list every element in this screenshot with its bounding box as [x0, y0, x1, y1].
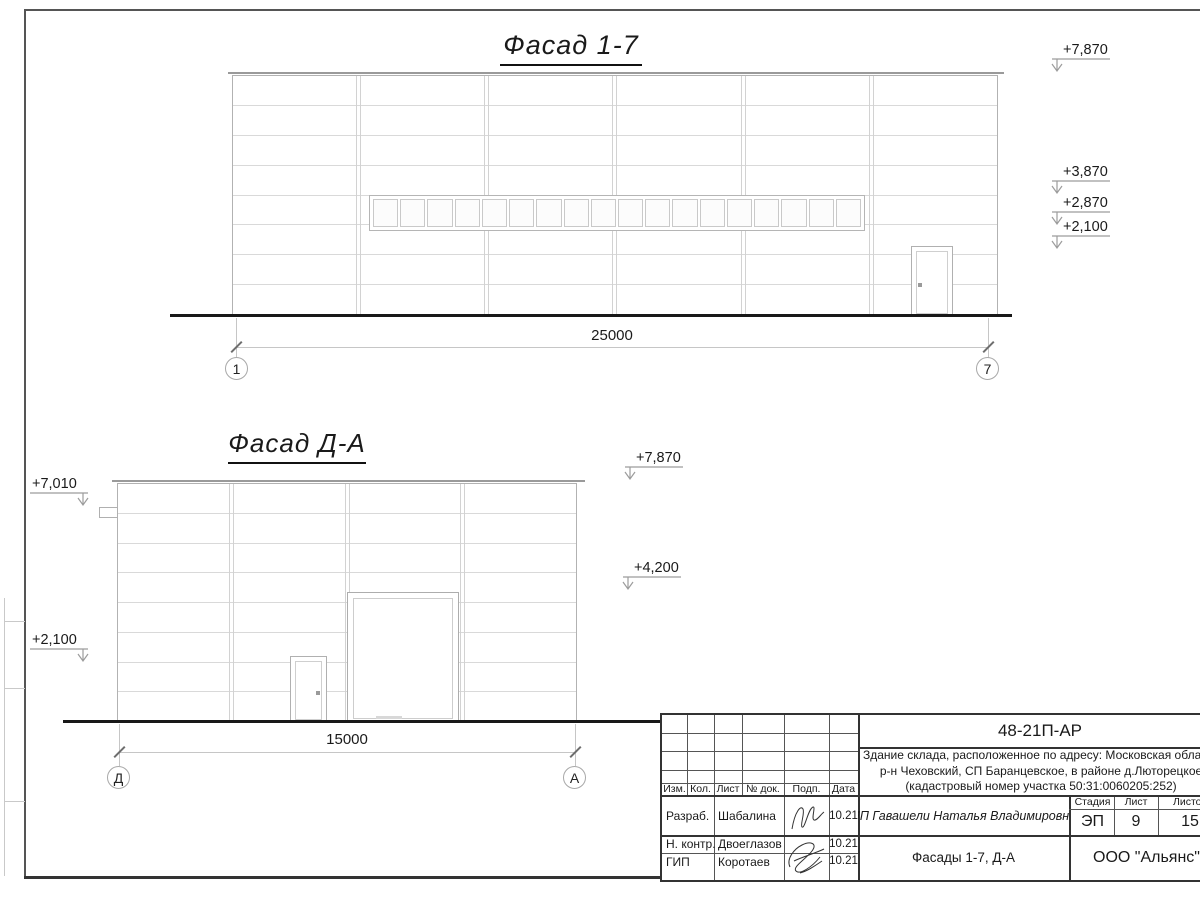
elevation-symbol-icon — [1050, 235, 1112, 251]
col-header-kol: Кол. — [687, 783, 714, 795]
elevation-mark: +7,010 — [28, 476, 92, 508]
project-description-line: р-н Чеховский, СП Баранцевское, в районе… — [860, 764, 1200, 780]
door-handle — [918, 283, 922, 287]
company-name: ООО "Альянс" — [1071, 835, 1200, 880]
gate-threshold — [376, 716, 402, 719]
elevation-value: +7,010 — [28, 476, 92, 492]
dimension-value: 25000 — [562, 327, 662, 344]
margin-divider — [4, 621, 25, 622]
sheet-number: 9 — [1114, 809, 1158, 835]
elevation-mark: +3,870 — [1050, 164, 1114, 196]
title-block-line — [662, 733, 858, 734]
signer-date: 10.21 — [829, 797, 858, 835]
entry-door — [911, 246, 953, 316]
margin-divider — [4, 688, 25, 689]
axis-marker-7: 7 — [976, 357, 999, 380]
facade-d-a-title: Фасад Д-А — [228, 428, 366, 464]
window-pane — [618, 199, 643, 227]
elevation-value: +7,870 — [1050, 42, 1114, 58]
elevation-value: +3,870 — [1050, 164, 1114, 180]
elevation-mark: +7,870 — [1050, 42, 1114, 74]
elevation-symbol-icon — [621, 576, 683, 592]
col-header-izm: Изм. — [662, 783, 687, 795]
window-pane — [373, 199, 398, 227]
project-description-line: Здание склада, расположенное по адресу: … — [860, 748, 1200, 764]
window-pane — [781, 199, 806, 227]
facade-d-a-elevation — [117, 483, 577, 722]
sheet-label: Лист — [1114, 795, 1158, 809]
window-pane — [591, 199, 616, 227]
signer-role: Разраб. — [662, 797, 718, 835]
sheets-label: Листов — [1158, 795, 1200, 809]
elevation-symbol-icon — [1050, 58, 1112, 74]
window-pane — [427, 199, 452, 227]
window-pane — [455, 199, 480, 227]
parapet-coping — [112, 480, 585, 482]
sheets-total: 15 — [1158, 809, 1200, 835]
signer-date: 10.21 — [829, 853, 858, 878]
elevation-value: +4,200 — [621, 560, 685, 576]
drawing-title: Фасады 1-7, Д-А — [858, 835, 1069, 880]
axis-marker-1: 1 — [225, 357, 248, 380]
elevation-value: +7,870 — [623, 450, 687, 466]
signer-role: ГИП — [662, 853, 718, 878]
roller-gate — [347, 592, 459, 722]
axis-marker-d: Д — [107, 766, 130, 789]
signer-name: Двоеглазов — [714, 835, 788, 853]
margin-column-line — [4, 598, 5, 876]
signature-icon — [786, 799, 828, 835]
extension-line — [575, 724, 576, 766]
signature-icon — [782, 833, 830, 879]
dimension-line — [119, 752, 575, 753]
window-pane — [509, 199, 534, 227]
frame-left — [24, 9, 26, 878]
side-entry-door — [290, 656, 327, 722]
window-pane — [645, 199, 670, 227]
elevation-mark: +7,870 — [623, 450, 687, 482]
elevation-mark: +4,200 — [621, 560, 685, 592]
window-pane — [400, 199, 425, 227]
wall-outlet — [99, 507, 118, 518]
elevation-value: +2,100 — [28, 632, 92, 648]
facade-1-7-title: Фасад 1-7 — [500, 30, 642, 66]
client-name: ИП Гавашели Наталья Владимировна — [858, 797, 1069, 835]
door-handle — [316, 691, 320, 695]
signer-date: 10.21 — [829, 835, 858, 853]
window-pane — [482, 199, 507, 227]
window-pane — [836, 199, 861, 227]
col-header-list: Лист — [714, 783, 742, 795]
extension-line — [236, 318, 237, 358]
extension-line — [119, 724, 120, 766]
column-joint — [229, 484, 234, 721]
elevation-symbol-icon — [28, 648, 90, 664]
gate-leaf — [353, 598, 453, 719]
window-pane — [536, 199, 561, 227]
project-description: Здание склада, расположенное по адресу: … — [860, 748, 1200, 795]
stage-value: ЭП — [1071, 809, 1114, 835]
col-header-data: Дата — [829, 783, 858, 795]
window-band — [369, 195, 865, 231]
window-pane — [564, 199, 589, 227]
signer-name: Шабалина — [714, 797, 788, 835]
dimension-line — [236, 347, 988, 348]
ground-line — [170, 314, 1012, 317]
dimension-value: 15000 — [297, 731, 397, 748]
stage-label: Стадия — [1071, 795, 1114, 809]
signer-role: Н. контр. — [662, 835, 718, 853]
column-joint — [869, 76, 874, 314]
signer-name: Коротаев — [714, 853, 788, 878]
window-pane — [700, 199, 725, 227]
elevation-mark: +2,100 — [28, 632, 92, 664]
title-block: Изм. Кол. Лист № док. Подп. Дата Разраб.… — [660, 713, 1200, 882]
axis-marker-a: А — [563, 766, 586, 789]
title-block-line — [662, 770, 858, 771]
window-pane — [672, 199, 697, 227]
col-header-doc: № док. — [742, 783, 784, 795]
window-pane — [754, 199, 779, 227]
extension-line — [988, 318, 989, 358]
column-joint — [460, 484, 465, 721]
elevation-symbol-icon — [1050, 180, 1112, 196]
elevation-mark: +2,100 — [1050, 219, 1114, 251]
document-code: 48-21П-АР — [858, 715, 1200, 747]
elevation-value: +2,870 — [1050, 195, 1114, 211]
project-description-line: (кадастровый номер участка 50:31:0060205… — [860, 779, 1200, 795]
window-pane — [727, 199, 752, 227]
margin-divider — [4, 801, 25, 802]
parapet-coping — [228, 72, 1004, 74]
elevation-symbol-icon — [28, 492, 90, 508]
elevation-symbol-icon — [623, 466, 685, 482]
title-block-line — [662, 751, 858, 752]
elevation-value: +2,100 — [1050, 219, 1114, 235]
frame-top — [24, 9, 1200, 11]
column-joint — [356, 76, 361, 314]
drawing-sheet: Фасад 1-7 +7,870 +3,870 +2,870 +2,100 — [0, 0, 1200, 900]
window-pane — [809, 199, 834, 227]
facade-1-7-elevation — [232, 75, 998, 315]
col-header-podp: Подп. — [784, 783, 829, 795]
